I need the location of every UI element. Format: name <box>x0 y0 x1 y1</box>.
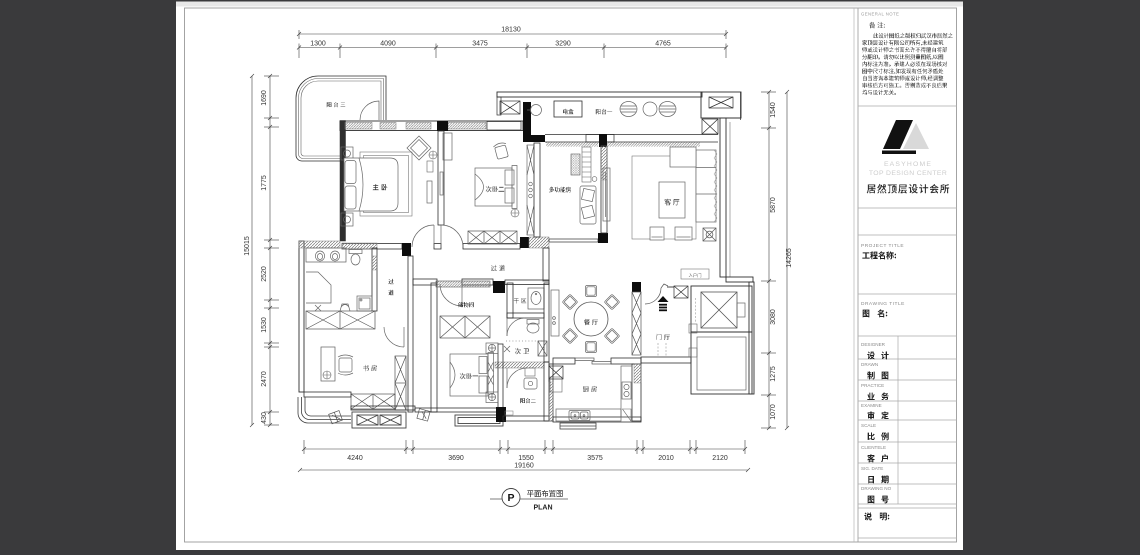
svg-text:5870: 5870 <box>770 197 777 213</box>
svg-text:3690: 3690 <box>448 455 464 462</box>
svg-text:3080: 3080 <box>770 309 777 325</box>
svg-text:2120: 2120 <box>712 455 728 462</box>
svg-text:430: 430 <box>261 412 268 424</box>
svg-text:4240: 4240 <box>347 455 363 462</box>
svg-text:2470: 2470 <box>261 371 268 387</box>
svg-text:DRAWN: DRAWN <box>861 362 878 367</box>
svg-text:1775: 1775 <box>261 175 268 191</box>
svg-text:PROJECT TITLE: PROJECT TITLE <box>861 243 904 249</box>
svg-text:DRAWING TITLE: DRAWING TITLE <box>861 301 905 307</box>
svg-text:3575: 3575 <box>587 455 603 462</box>
svg-text:1070: 1070 <box>770 404 777 420</box>
svg-text:19160: 19160 <box>514 463 534 470</box>
svg-text:SIG. DATE: SIG. DATE <box>861 466 883 471</box>
svg-text:PRACTICE: PRACTICE <box>861 383 884 388</box>
svg-text:3290: 3290 <box>555 41 571 48</box>
svg-text:1530: 1530 <box>261 317 268 333</box>
svg-text:SCALE: SCALE <box>861 423 876 428</box>
svg-text:1275: 1275 <box>770 366 777 382</box>
svg-text:GENERAL NOTE: GENERAL NOTE <box>861 12 899 17</box>
svg-text:3475: 3475 <box>472 41 488 48</box>
svg-text:1540: 1540 <box>770 102 777 118</box>
svg-text:2520: 2520 <box>261 266 268 282</box>
svg-text:15015: 15015 <box>244 236 251 256</box>
svg-text:DESIGNER: DESIGNER <box>861 342 886 347</box>
svg-text:EXAMINE: EXAMINE <box>861 403 882 408</box>
svg-text:1300: 1300 <box>310 41 326 48</box>
svg-text:1690: 1690 <box>261 90 268 106</box>
svg-text:14265: 14265 <box>786 248 793 268</box>
svg-text:4090: 4090 <box>380 41 396 48</box>
svg-text:TOP DESIGN CENTER: TOP DESIGN CENTER <box>869 170 947 177</box>
svg-text:P: P <box>507 492 514 504</box>
svg-text:1550: 1550 <box>518 455 534 462</box>
svg-text:EASYHOME: EASYHOME <box>884 161 932 168</box>
svg-text:4765: 4765 <box>655 41 671 48</box>
svg-text:2010: 2010 <box>658 455 674 462</box>
svg-text:18130: 18130 <box>501 27 521 34</box>
svg-text:PLAN: PLAN <box>533 505 552 512</box>
svg-text:DRAWING NO: DRAWING NO <box>861 486 892 491</box>
svg-text:CLIENTELE: CLIENTELE <box>861 445 886 450</box>
